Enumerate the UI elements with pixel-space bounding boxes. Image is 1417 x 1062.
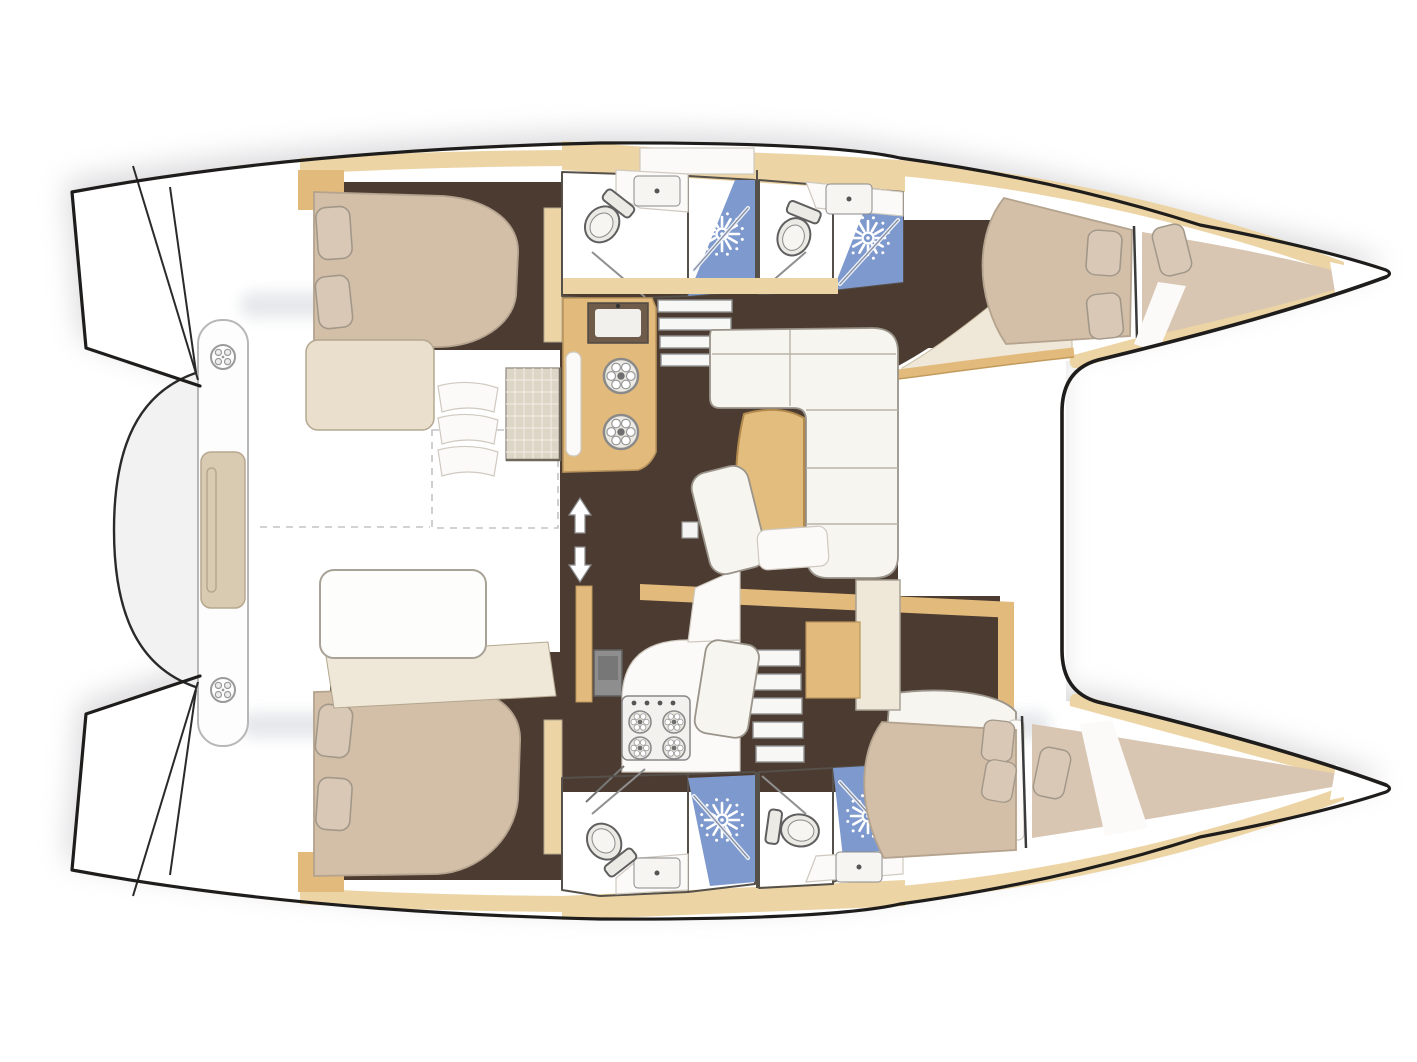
burner-icon	[663, 711, 685, 733]
companionway-hatch	[757, 526, 830, 571]
bench-seat	[320, 570, 486, 658]
pillow	[314, 274, 353, 329]
pillow	[315, 777, 353, 831]
wardrobe	[544, 208, 562, 342]
mast-foot	[682, 522, 698, 538]
cabinet-door	[576, 586, 592, 702]
burner-icon	[629, 711, 651, 733]
pillow	[980, 758, 1017, 803]
chart-desk	[806, 622, 860, 698]
bench-seat	[306, 340, 434, 430]
deck-fitting-icon	[211, 678, 235, 702]
pillow	[315, 206, 353, 260]
basin-drain-icon	[847, 197, 852, 202]
burner-icon	[629, 737, 651, 759]
burner-icon	[663, 737, 685, 759]
davit-pod	[114, 371, 202, 689]
slat-seat	[438, 382, 498, 476]
round-basin-icon	[604, 415, 638, 449]
pillow	[1085, 230, 1122, 277]
faucet-icon	[616, 304, 620, 308]
grating-table	[506, 368, 560, 460]
wardrobe	[544, 720, 562, 854]
catamaran-floor-plan	[0, 0, 1417, 1062]
catamaran-floor-plan-image	[0, 0, 1417, 1062]
oven-window	[598, 656, 618, 680]
hatch	[640, 148, 754, 174]
deck-fitting-icon	[211, 345, 235, 369]
round-basin-icon	[604, 359, 638, 393]
pillow	[981, 719, 1016, 763]
sink-basin	[595, 309, 641, 337]
pillow	[314, 703, 353, 758]
towel-rail	[566, 352, 581, 456]
basin-drain-icon	[857, 865, 862, 870]
cabinet	[856, 580, 900, 710]
counter-edge	[563, 278, 838, 294]
stbd-forward-cabin	[864, 691, 1026, 858]
basin-drain-icon	[655, 871, 660, 876]
pillow	[1086, 292, 1124, 340]
basin-drain-icon	[655, 189, 660, 194]
